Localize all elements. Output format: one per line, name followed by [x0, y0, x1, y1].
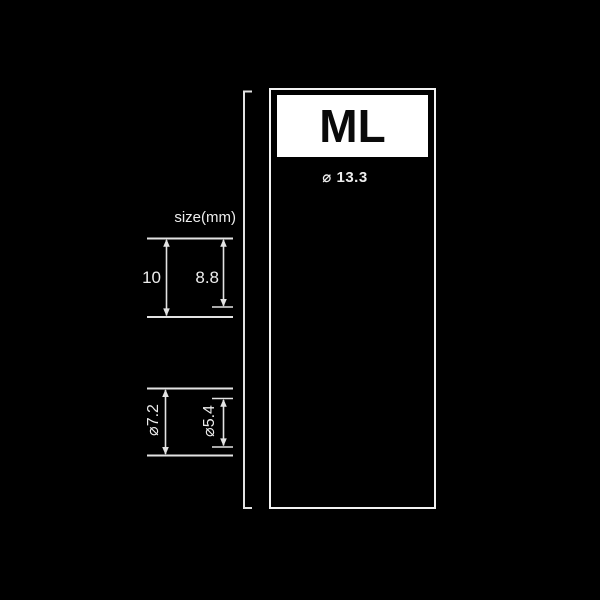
- total-height-label: 10: [125, 268, 161, 288]
- size-code-label: ML: [319, 103, 385, 149]
- left-bracket: [244, 92, 252, 509]
- core-outer-diameter-label: ⌀7.2: [143, 404, 163, 436]
- dome-height-label: 8.8: [180, 268, 219, 288]
- unit-label: size(mm): [140, 209, 236, 227]
- size-plate: ML: [277, 95, 428, 157]
- top-diameter-label: ⌀ 13.3: [322, 168, 367, 186]
- core-inner-diameter-label: ⌀5.4: [199, 405, 219, 437]
- spec-sheet: ML ⌀ 13.3 size(mm) 10 8.8 ⌀7.2 ⌀5.4: [0, 0, 600, 600]
